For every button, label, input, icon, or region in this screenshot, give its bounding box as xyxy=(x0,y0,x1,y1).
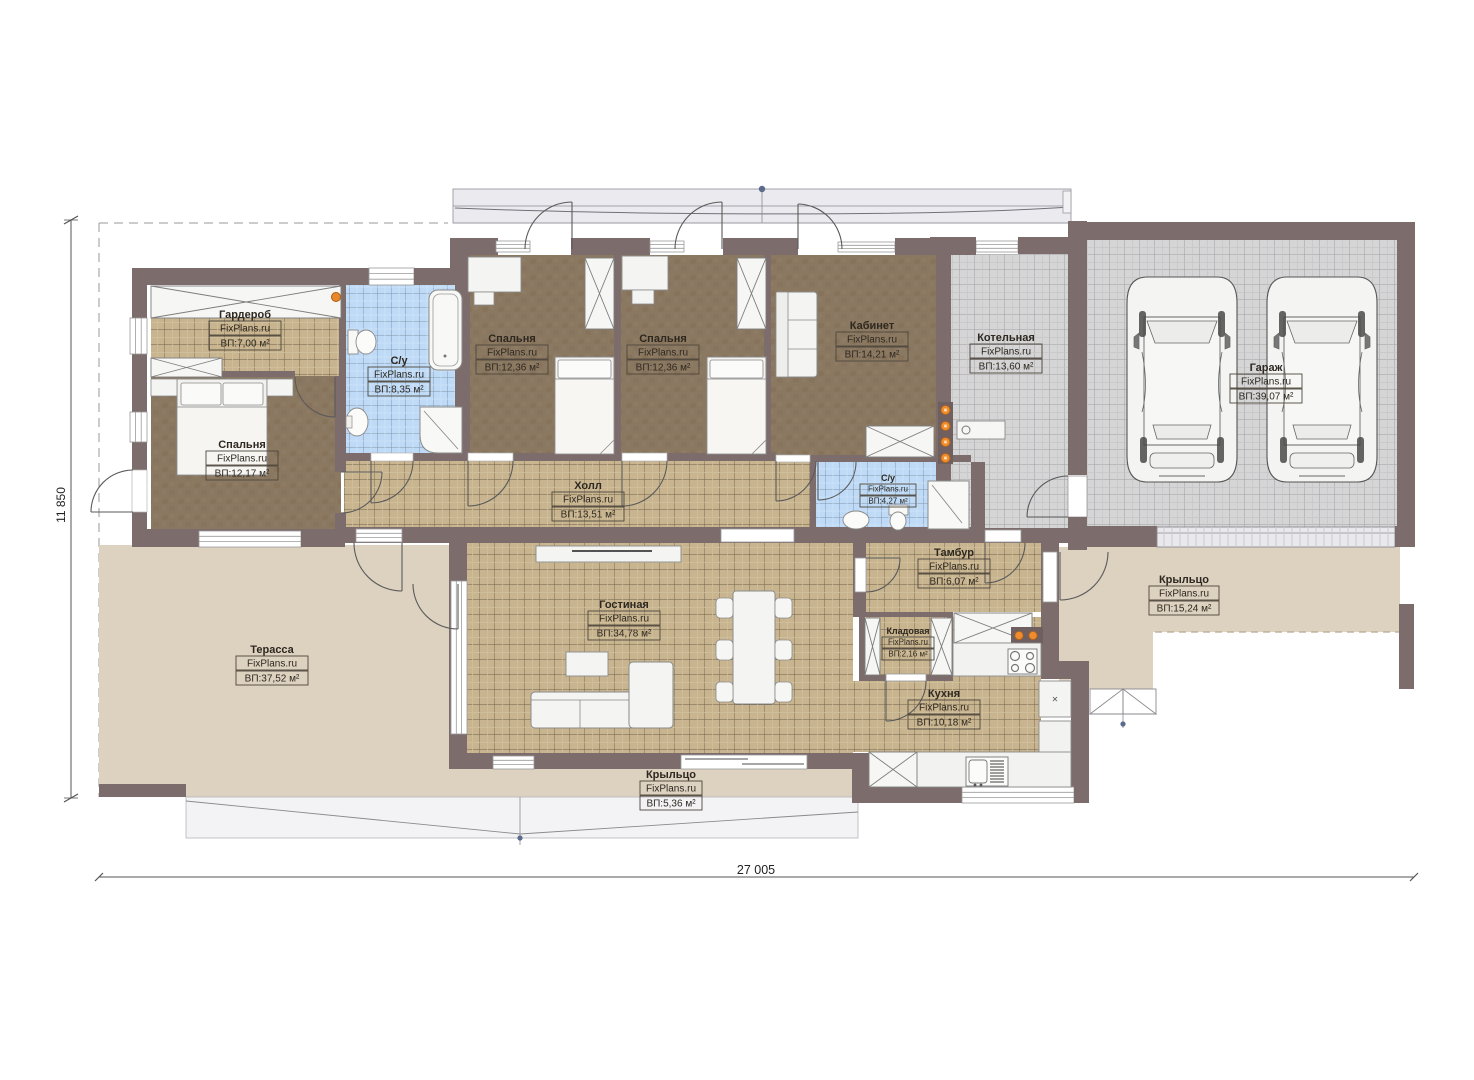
svg-text:ВП:34,78 м²: ВП:34,78 м² xyxy=(597,629,652,640)
svg-text:FixPlans.ru: FixPlans.ru xyxy=(563,495,613,506)
svg-text:FixPlans.ru: FixPlans.ru xyxy=(220,324,270,335)
svg-text:ВП:13,60 м²: ВП:13,60 м² xyxy=(979,362,1034,373)
svg-text:ВП:12,17 м²: ВП:12,17 м² xyxy=(215,469,270,480)
svg-text:Гардероб: Гардероб xyxy=(219,309,271,321)
svg-text:FixPlans.ru: FixPlans.ru xyxy=(217,454,267,465)
svg-text:ВП:7,00 м²: ВП:7,00 м² xyxy=(220,339,270,350)
svg-text:FixPlans.ru: FixPlans.ru xyxy=(487,348,537,359)
svg-text:✕: ✕ xyxy=(1052,695,1059,704)
svg-text:Спальня: Спальня xyxy=(639,333,687,345)
svg-text:FixPlans.ru: FixPlans.ru xyxy=(646,784,696,795)
svg-text:ВП:12,36 м²: ВП:12,36 м² xyxy=(636,363,691,374)
svg-text:FixPlans.ru: FixPlans.ru xyxy=(599,614,649,625)
svg-text:С/у: С/у xyxy=(390,355,408,367)
svg-text:FixPlans.ru: FixPlans.ru xyxy=(374,370,424,381)
svg-text:Кабинет: Кабинет xyxy=(850,320,895,332)
svg-text:FixPlans.ru: FixPlans.ru xyxy=(1241,377,1291,388)
svg-text:ВП:2,16 м²: ВП:2,16 м² xyxy=(888,650,928,659)
svg-text:FixPlans.ru: FixPlans.ru xyxy=(919,703,969,714)
svg-text:ВП:10,18 м²: ВП:10,18 м² xyxy=(917,718,972,729)
svg-text:FixPlans.ru: FixPlans.ru xyxy=(981,347,1031,358)
svg-text:ВП:8,35 м²: ВП:8,35 м² xyxy=(374,385,424,396)
svg-text:С/у: С/у xyxy=(881,473,895,483)
svg-text:ВП:4,27 м²: ВП:4,27 м² xyxy=(868,497,908,506)
svg-text:Котельная: Котельная xyxy=(977,332,1035,344)
svg-text:FixPlans.ru: FixPlans.ru xyxy=(847,335,897,346)
svg-text:Кладовая: Кладовая xyxy=(886,626,929,636)
svg-text:ВП:12,36 м²: ВП:12,36 м² xyxy=(485,363,540,374)
svg-text:ВП:14,21 м²: ВП:14,21 м² xyxy=(845,350,900,361)
svg-text:FixPlans.ru: FixPlans.ru xyxy=(1159,589,1209,600)
svg-text:Холл: Холл xyxy=(574,480,602,492)
svg-text:Спальня: Спальня xyxy=(218,439,266,451)
svg-text:Гостиная: Гостиная xyxy=(599,599,649,611)
svg-text:ВП:6,07 м²: ВП:6,07 м² xyxy=(929,577,979,588)
svg-text:ВП:39,07 м²: ВП:39,07 м² xyxy=(1239,392,1294,403)
svg-text:ВП:13,51 м²: ВП:13,51 м² xyxy=(561,510,616,521)
svg-text:Спальня: Спальня xyxy=(488,333,536,345)
svg-text:Кухня: Кухня xyxy=(928,688,960,700)
svg-text:Крыльцо: Крыльцо xyxy=(1159,574,1209,586)
svg-text:FixPlans.ru: FixPlans.ru xyxy=(638,348,688,359)
svg-text:FixPlans.ru: FixPlans.ru xyxy=(888,638,928,647)
svg-text:FixPlans.ru: FixPlans.ru xyxy=(247,659,297,670)
svg-text:ВП:15,24 м²: ВП:15,24 м² xyxy=(1157,604,1212,615)
svg-text:FixPlans.ru: FixPlans.ru xyxy=(868,485,908,494)
svg-text:Гараж: Гараж xyxy=(1250,362,1283,374)
svg-text:27 005: 27 005 xyxy=(737,863,775,877)
svg-text:ВП:5,36 м²: ВП:5,36 м² xyxy=(646,799,696,810)
svg-text:ВП:37,52 м²: ВП:37,52 м² xyxy=(245,674,300,685)
svg-text:Тамбур: Тамбур xyxy=(934,547,974,559)
svg-text:11 850: 11 850 xyxy=(54,487,68,523)
svg-text:FixPlans.ru: FixPlans.ru xyxy=(929,562,979,573)
svg-text:Терасса: Терасса xyxy=(250,644,294,656)
svg-text:Крыльцо: Крыльцо xyxy=(646,769,696,781)
